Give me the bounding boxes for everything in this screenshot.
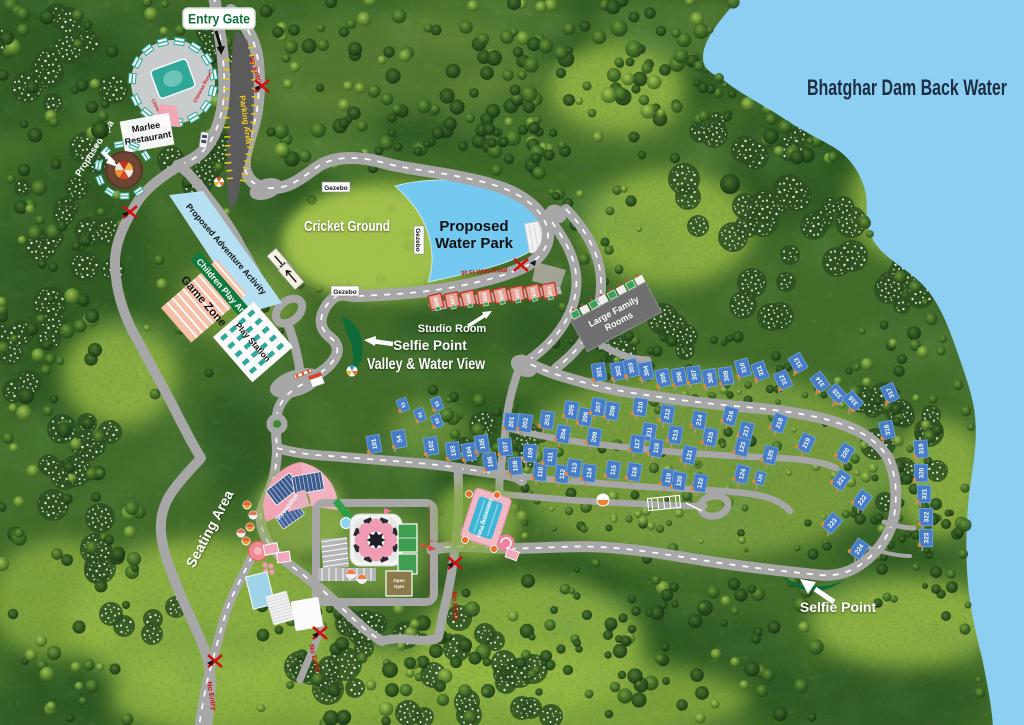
svg-text:Valley & Water View: Valley & Water View xyxy=(367,356,485,373)
svg-text:Selfie Point: Selfie Point xyxy=(800,599,877,615)
svg-text:201: 201 xyxy=(508,416,516,428)
svg-text:114: 114 xyxy=(586,467,594,479)
svg-text:113: 113 xyxy=(571,462,579,474)
svg-text:Entry Gate: Entry Gate xyxy=(188,12,250,27)
svg-text:Studio Room: Studio Room xyxy=(418,323,487,335)
svg-text:Cricket Ground: Cricket Ground xyxy=(304,218,390,235)
svg-text:Water Park: Water Park xyxy=(435,235,513,252)
svg-text:Gym: Gym xyxy=(394,584,404,589)
svg-text:Open: Open xyxy=(393,578,405,583)
svg-text:107: 107 xyxy=(502,441,510,453)
svg-text:321: 321 xyxy=(921,488,928,499)
svg-text:Proposed: Proposed xyxy=(439,218,508,235)
svg-text:Selfie Point: Selfie Point xyxy=(393,338,467,353)
svg-text:Bhatghar Dam Back Water: Bhatghar Dam Back Water xyxy=(807,75,1007,100)
svg-text:322: 322 xyxy=(923,511,930,522)
svg-text:323: 323 xyxy=(923,532,930,543)
svg-text:111: 111 xyxy=(547,451,555,462)
svg-text:Gezebo: Gezebo xyxy=(324,185,348,192)
svg-text:Gezebo: Gezebo xyxy=(333,289,357,296)
svg-text:320: 320 xyxy=(918,467,925,478)
svg-text:117: 117 xyxy=(634,438,642,450)
svg-text:109: 109 xyxy=(527,447,535,459)
svg-text:110: 110 xyxy=(537,466,545,477)
svg-text:108: 108 xyxy=(512,460,520,472)
svg-text:Gezebo: Gezebo xyxy=(414,228,421,252)
svg-text:319: 319 xyxy=(918,443,926,455)
